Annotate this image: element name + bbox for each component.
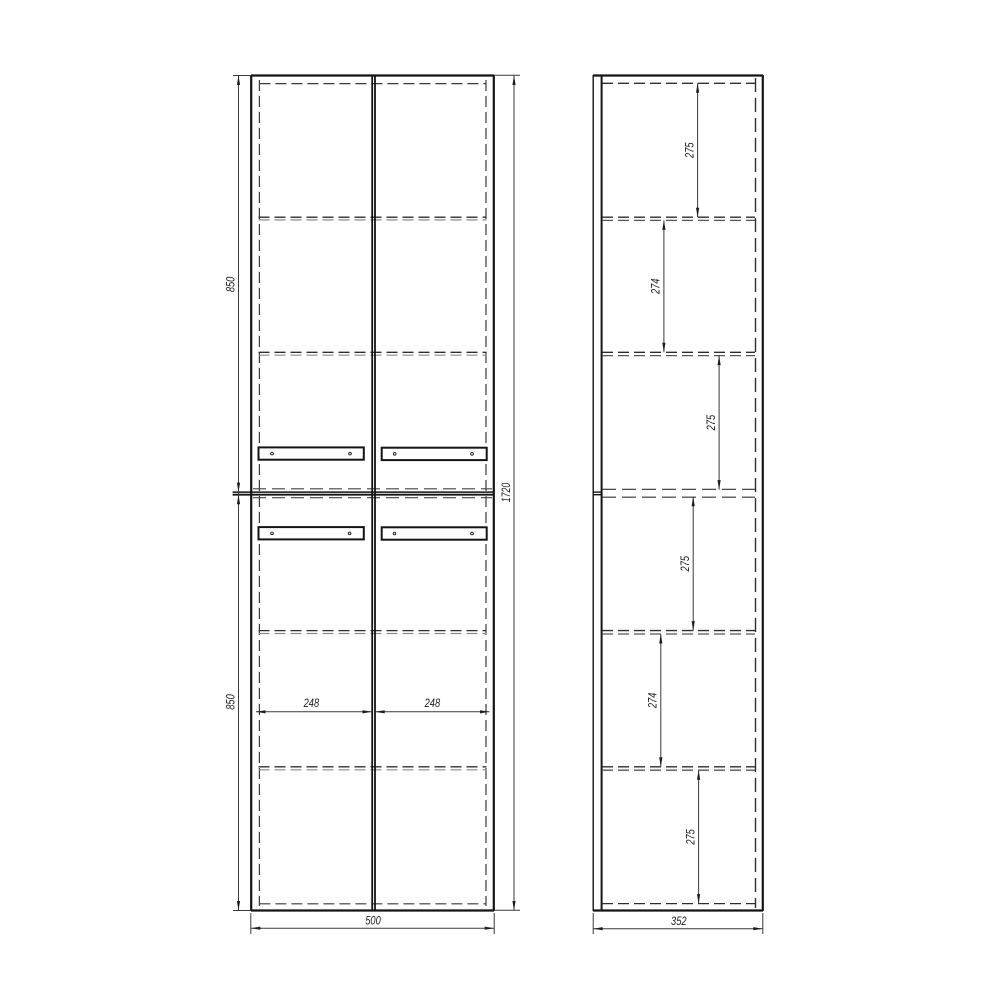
- svg-text:500: 500: [365, 914, 381, 928]
- svg-text:275: 275: [678, 556, 692, 573]
- svg-text:248: 248: [303, 696, 320, 710]
- svg-text:850: 850: [223, 276, 237, 292]
- svg-text:275: 275: [704, 415, 718, 432]
- svg-text:275: 275: [682, 142, 696, 159]
- svg-text:352: 352: [671, 914, 687, 928]
- svg-text:275: 275: [683, 829, 697, 846]
- svg-text:1720: 1720: [499, 483, 513, 503]
- svg-text:850: 850: [223, 694, 237, 710]
- svg-text:274: 274: [649, 278, 663, 295]
- svg-text:248: 248: [424, 696, 441, 710]
- svg-text:274: 274: [646, 692, 660, 709]
